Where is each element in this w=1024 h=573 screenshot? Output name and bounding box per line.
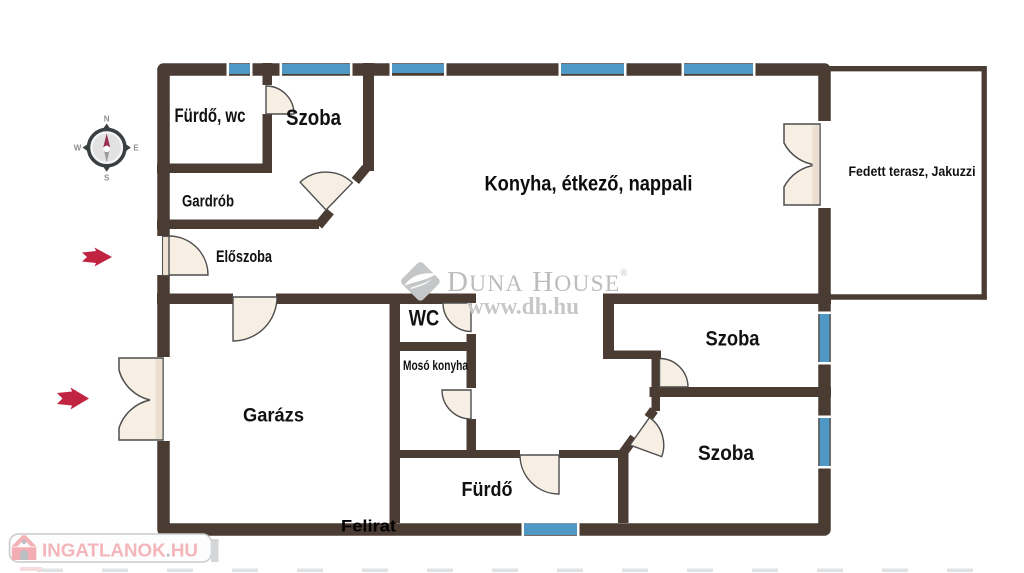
svg-text:Felirat: Felirat (341, 517, 396, 536)
svg-text:Fürdő, wc: Fürdő, wc (175, 106, 246, 127)
svg-text:S: S (104, 174, 110, 183)
svg-text:INGATLANOK.HU: INGATLANOK.HU (42, 540, 198, 561)
svg-text:Előszoba: Előszoba (216, 247, 272, 266)
svg-text:Szoba: Szoba (286, 105, 342, 130)
svg-text:N: N (104, 115, 110, 124)
svg-text:Fedett terasz, Jakuzzi: Fedett terasz, Jakuzzi (849, 164, 976, 179)
svg-text:Konyha, étkező, nappali: Konyha, étkező, nappali (485, 172, 693, 196)
svg-text:W: W (74, 144, 82, 153)
svg-text:Gardrób: Gardrób (182, 192, 234, 211)
svg-text:Garázs: Garázs (243, 406, 304, 427)
svg-text:Szoba: Szoba (698, 442, 754, 465)
svg-text:WC: WC (409, 306, 440, 331)
svg-text:E: E (133, 144, 139, 153)
svg-text:Szoba: Szoba (706, 328, 760, 351)
svg-text:®: ® (620, 268, 628, 279)
svg-text:Fürdő: Fürdő (462, 479, 513, 501)
svg-text:www.dh.hu: www.dh.hu (467, 293, 579, 320)
svg-text:Mosó konyha: Mosó konyha (403, 358, 468, 373)
